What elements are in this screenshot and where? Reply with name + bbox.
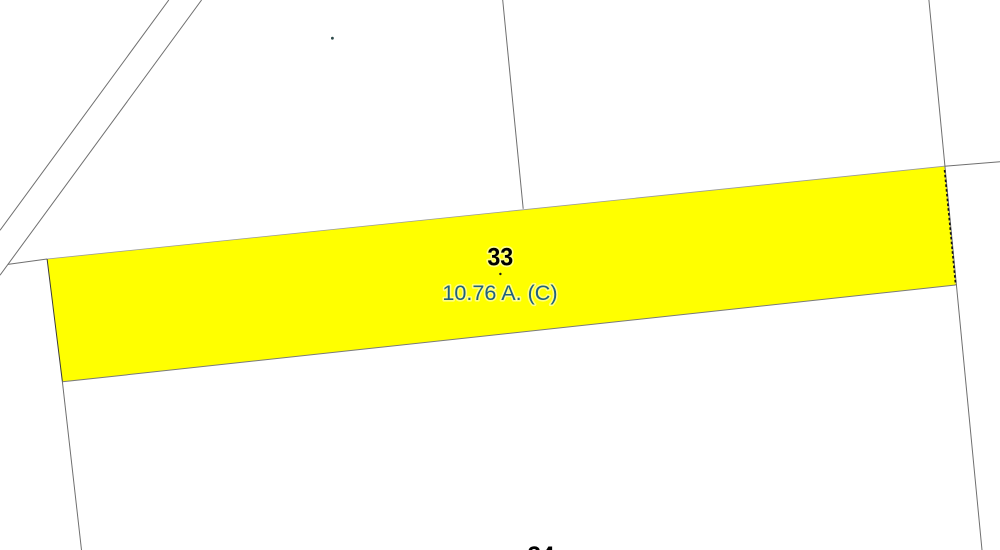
svg-text:34: 34 (528, 542, 555, 550)
svg-text:10.76 A. (C): 10.76 A. (C) (442, 281, 557, 305)
svg-text:33: 33 (487, 243, 513, 271)
